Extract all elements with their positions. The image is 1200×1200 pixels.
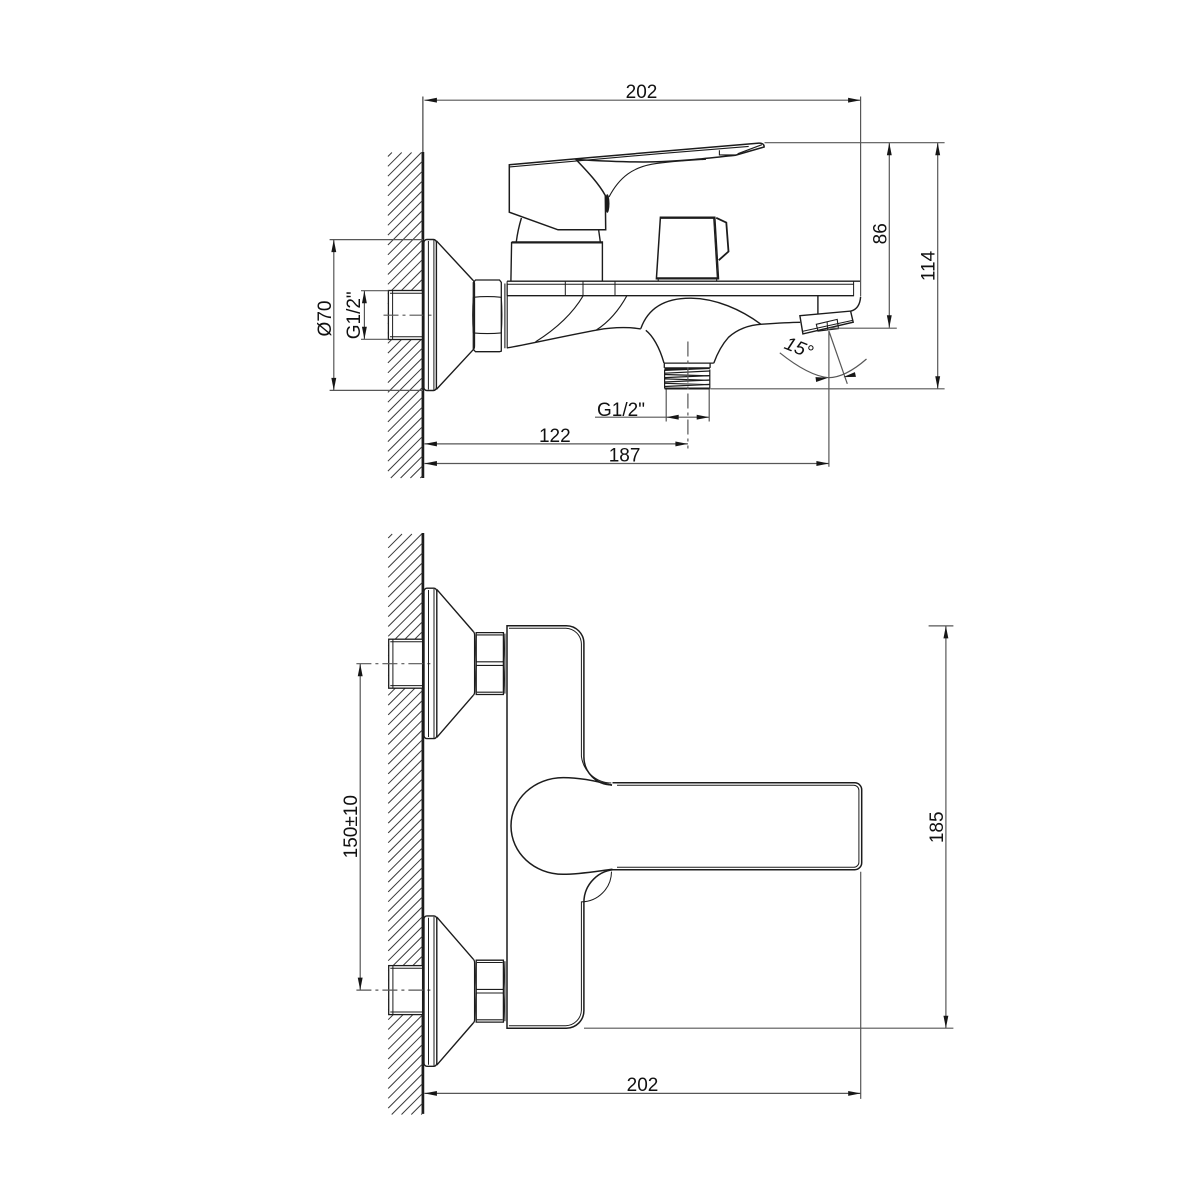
- svg-text:G1/2": G1/2": [597, 400, 645, 421]
- svg-text:202: 202: [627, 1075, 659, 1096]
- svg-text:15°: 15°: [781, 333, 816, 363]
- svg-text:Ø70: Ø70: [315, 301, 336, 337]
- svg-text:187: 187: [609, 446, 641, 467]
- svg-text:122: 122: [539, 426, 571, 447]
- svg-text:185: 185: [927, 811, 948, 843]
- svg-text:150±10: 150±10: [341, 795, 362, 858]
- svg-text:86: 86: [870, 223, 891, 244]
- svg-text:202: 202: [626, 82, 658, 103]
- svg-text:114: 114: [919, 250, 940, 281]
- svg-text:G1/2": G1/2": [344, 291, 365, 339]
